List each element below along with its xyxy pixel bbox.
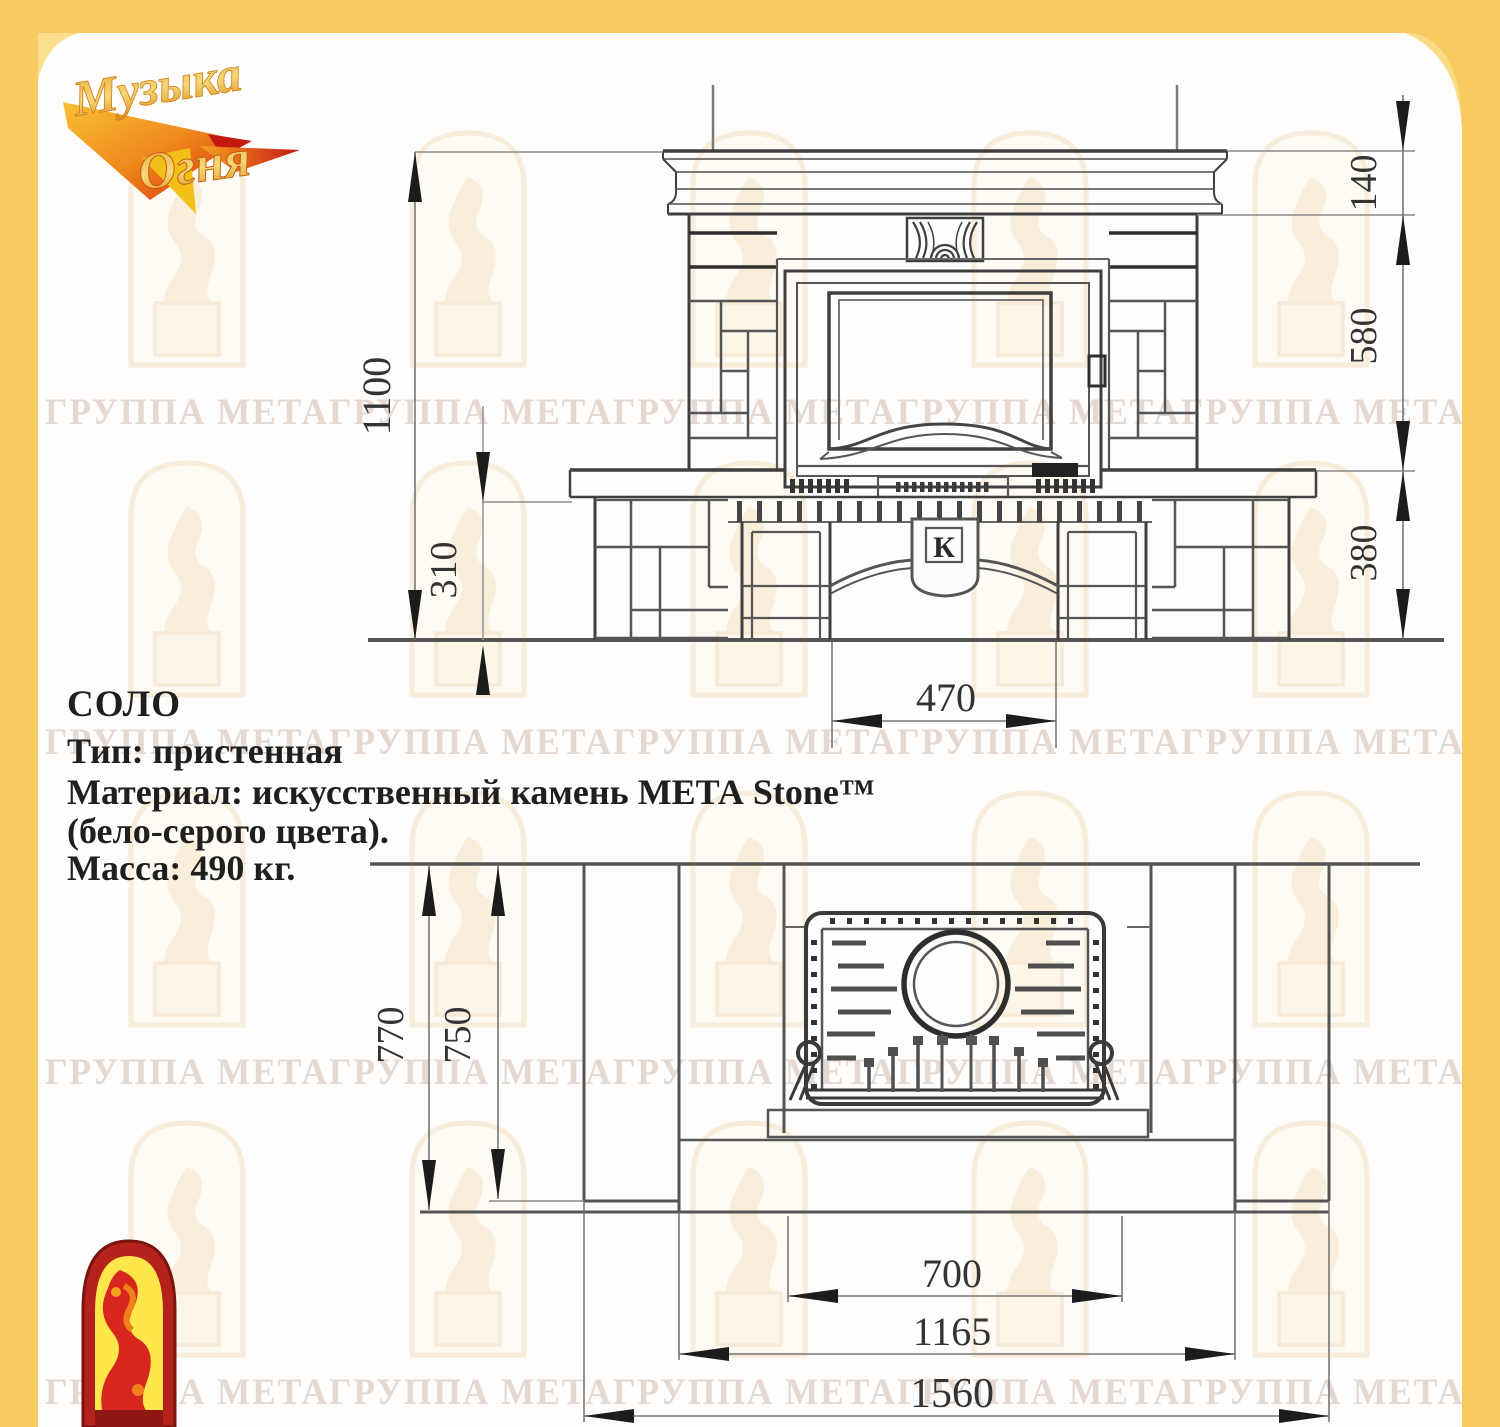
- svg-text:1100: 1100: [354, 357, 399, 436]
- svg-text:770: 770: [370, 1007, 412, 1064]
- svg-text:СОЛО: СОЛО: [67, 684, 181, 725]
- svg-text:ГРУППА МЕТАГРУППА МЕТАГРУППА М: ГРУППА МЕТАГРУППА МЕТАГРУППА МЕТАГРУППА …: [45, 392, 1465, 433]
- svg-text:К: К: [933, 531, 955, 564]
- svg-text:(бело-серого цвета).: (бело-серого цвета).: [67, 811, 389, 851]
- svg-text:470: 470: [916, 675, 976, 720]
- svg-text:750: 750: [437, 1007, 479, 1064]
- svg-text:1165: 1165: [913, 1309, 992, 1354]
- svg-text:580: 580: [1343, 308, 1385, 365]
- svg-text:310: 310: [423, 542, 465, 599]
- svg-text:ГРУППА МЕТАГРУППА МЕТАГРУППА М: ГРУППА МЕТАГРУППА МЕТАГРУППА МЕТАГРУППА …: [45, 1372, 1465, 1413]
- svg-text:Тип: пристенная: Тип: пристенная: [67, 731, 343, 771]
- svg-text:380: 380: [1343, 525, 1385, 582]
- svg-text:Масса: 490 кг.: Масса: 490 кг.: [67, 848, 295, 888]
- svg-text:140: 140: [1343, 155, 1385, 212]
- svg-text:ГРУППА МЕТАГРУППА МЕТАГРУППА М: ГРУППА МЕТАГРУППА МЕТАГРУППА МЕТАГРУППА …: [45, 1052, 1465, 1093]
- svg-text:700: 700: [922, 1251, 982, 1296]
- svg-text:Материал: искусственный камень: Материал: искусственный камень МЕТА Ston…: [67, 772, 875, 812]
- svg-text:1560: 1560: [910, 1371, 994, 1417]
